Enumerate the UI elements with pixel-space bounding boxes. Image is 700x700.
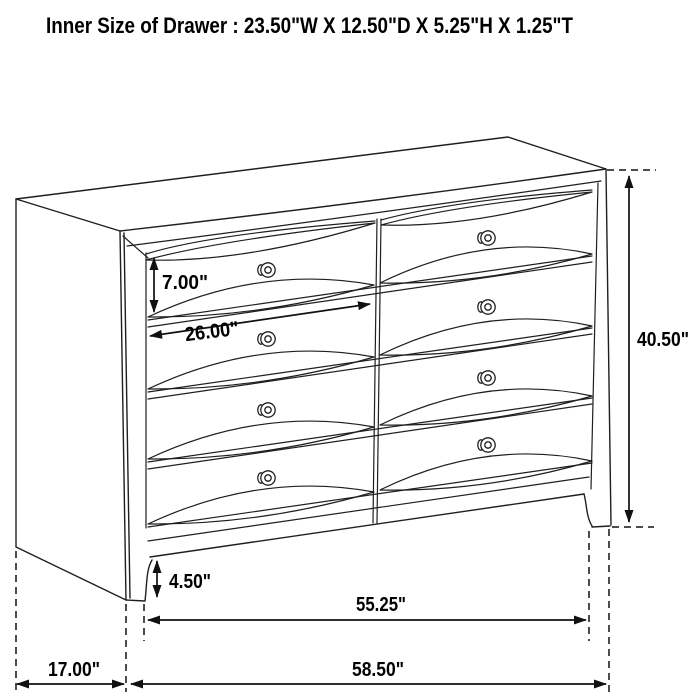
right-column-drawer-curves bbox=[380, 247, 592, 490]
dim-foot-height: 4.50" bbox=[169, 571, 211, 593]
dim-overall-height: 40.50" bbox=[637, 329, 689, 351]
knob-icon bbox=[478, 438, 495, 452]
dimension-annotations: 7.00" 26.00" 40.50" 4.50" 55.25" 17.00" … bbox=[16, 170, 689, 692]
knob-icon bbox=[258, 403, 275, 417]
dim-drawer-width: 26.00" bbox=[184, 318, 240, 346]
right-foot bbox=[584, 494, 610, 527]
dresser-top-left-bevel bbox=[123, 236, 148, 258]
dresser-side-panel bbox=[16, 199, 130, 600]
center-divider bbox=[373, 219, 381, 523]
dim-feet-span: 55.25" bbox=[356, 594, 406, 616]
knob-icon bbox=[258, 471, 275, 485]
drawer-row-lines bbox=[146, 190, 592, 557]
knob-icon bbox=[258, 332, 275, 346]
left-column-drawer-curves bbox=[148, 279, 374, 524]
dresser-dimension-diagram-page: Inner Size of Drawer : 23.50"W X 12.50"D… bbox=[0, 0, 700, 700]
dim-overall-width: 58.50" bbox=[352, 659, 404, 681]
knob-icon bbox=[478, 231, 495, 245]
knob-icon bbox=[258, 263, 275, 277]
dim-depth: 17.00" bbox=[48, 659, 100, 681]
dresser-figure bbox=[16, 137, 611, 601]
page-title: Inner Size of Drawer : 23.50"W X 12.50"D… bbox=[46, 13, 573, 38]
dresser-top-surface bbox=[16, 137, 606, 231]
dresser-dimension-diagram: Inner Size of Drawer : 23.50"W X 12.50"D… bbox=[0, 0, 700, 700]
drawer-width-arrow bbox=[150, 304, 370, 336]
knob-icon bbox=[478, 371, 495, 385]
right-post-outer-edge bbox=[606, 169, 611, 525]
right-post-inner-edge bbox=[591, 183, 598, 489]
dresser-top-edge-band bbox=[127, 181, 601, 246]
knob-icon bbox=[478, 300, 495, 314]
dim-drawer-front-height: 7.00" bbox=[162, 272, 208, 294]
